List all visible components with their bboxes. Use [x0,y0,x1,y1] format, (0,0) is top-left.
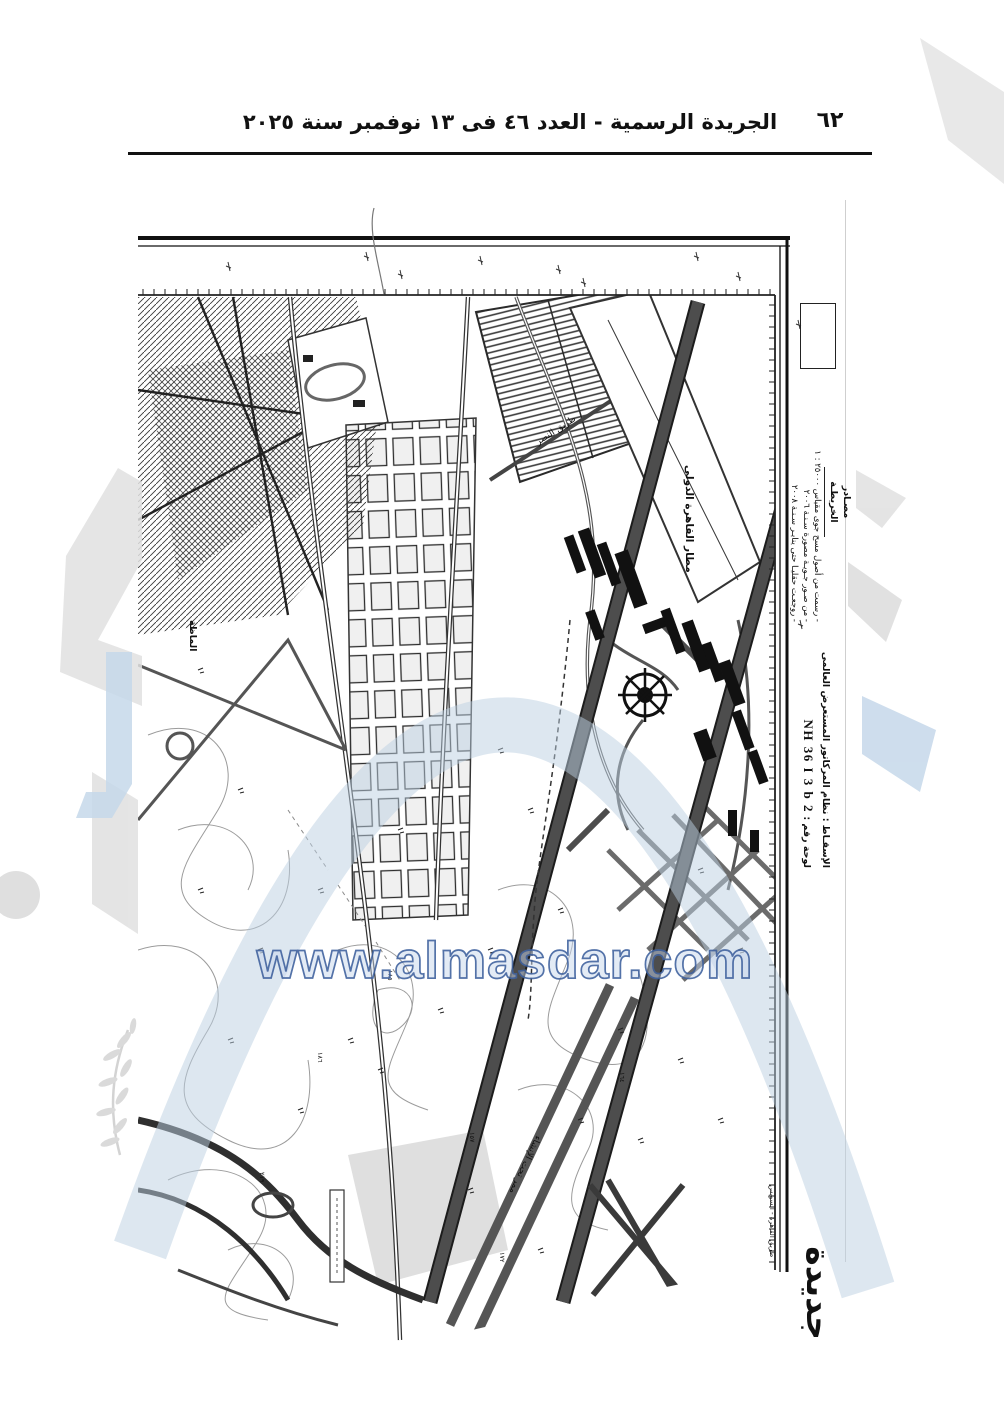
gazette-page: الجريدة الرسمية - العدد ٤٦ فى ١٣ نوفمبر … [0,0,1004,1418]
label-district: الماظة [187,620,198,651]
projection-note: الإسقـاط : نظام المركاتور المستعرض العال… [795,606,833,868]
page-number: ٦٢ [800,108,860,133]
watermark-blue-shape-left [76,652,132,818]
laurel-branch-watermark [95,1018,137,1155]
elevation-label: ١٦٤ [618,1072,626,1082]
projection-line: الإسقـاط : نظام المركاتور المستعرض العال… [818,606,833,868]
elevation-label: ٢١٩ [258,1172,266,1183]
label-airport: مطار القاهرة الدولى [683,465,695,573]
source-line: - روجعـت حقليـا حتى ينايـر سـنـة ٢٠٠٨ [787,382,799,622]
fold-artifact [372,208,384,294]
header-rule [128,152,872,155]
source-line: - من صـور جـويـة مصورة سـنـة ٢٠٠٦ [799,382,811,622]
sheet-title-partial: جديدة [794,1150,838,1340]
sources-heading: مصـادر الخريطـة [824,467,853,537]
sheet-number-value: NH 36 I 3 b 2 [801,719,816,813]
map-scan: مطار القاهرة الدولى طريق النصر ممر تحت ا… [138,190,868,1350]
map-content: مطار القاهرة الدولى طريق النصر ممر تحت ا… [138,288,868,1350]
road-sign-box [330,1190,344,1282]
elevation-label: ١٨٦ [316,1052,324,1063]
label-runway-construction: ممر تحت الإنشاء [507,1134,543,1195]
page-title: الجريدة الرسمية - العدد ٤٦ فى ١٣ نوفمبر … [240,110,780,134]
circular-terminal [618,668,672,722]
elevation-label: ١٥٧ [468,1132,476,1143]
elevation-label: ١٨٥ [386,970,394,981]
elevation-label: ١٧٢ [498,1252,506,1263]
legend-index-box [800,303,836,369]
map-sources-note: مصـادر الخريطـة - رسمت من أصول مسح جوى م… [799,382,853,622]
watermark-grey-shapes-left [0,468,142,934]
source-line: - رسمت من أصول مسح جوى مقياس ٢٥٠٠٠ : ١ [811,382,823,622]
sheet-number-line: لوحة رقم : NH 36 I 3 b 2 [797,606,818,868]
sheet-number-label: لوحة رقم : [801,816,812,868]
